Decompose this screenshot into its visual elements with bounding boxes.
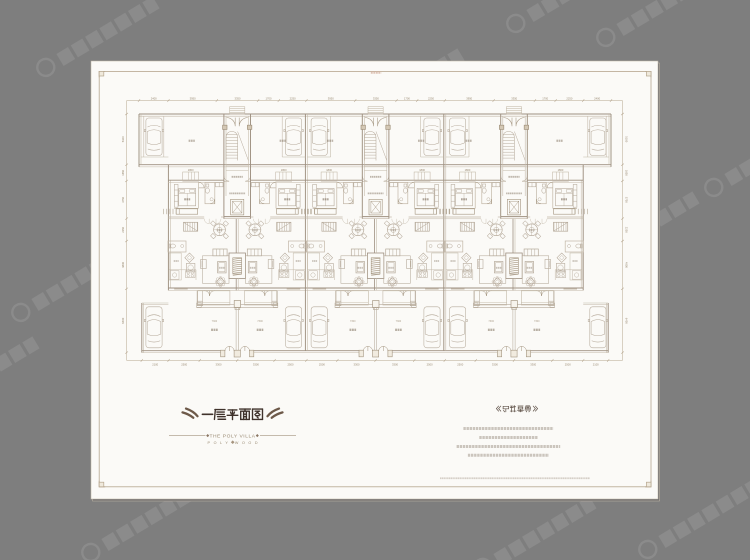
svg-text:1800: 1800: [188, 168, 194, 172]
svg-text:2100: 2100: [152, 362, 158, 366]
svg-text:1700: 1700: [404, 96, 410, 100]
svg-text:1800: 1800: [558, 168, 564, 172]
svg-text:2500: 2500: [288, 362, 294, 366]
svg-text:2250: 2250: [428, 96, 434, 100]
svg-text:2250: 2250: [290, 96, 296, 100]
svg-text:2400: 2400: [594, 96, 600, 100]
svg-text:2500: 2500: [457, 362, 463, 366]
svg-text:6400: 6400: [624, 318, 628, 324]
svg-text:3950: 3950: [328, 96, 334, 100]
svg-text:2500: 2500: [565, 362, 571, 366]
svg-text:1650: 1650: [121, 169, 125, 175]
svg-text:5100: 5100: [624, 136, 628, 142]
svg-text:2500: 2500: [427, 362, 433, 366]
svg-text:2250: 2250: [121, 226, 125, 232]
svg-text:WOOD: WOOD: [235, 441, 261, 445]
svg-text:1650: 1650: [624, 170, 628, 176]
svg-text:1700: 1700: [542, 96, 548, 100]
svg-text:4800: 4800: [624, 262, 628, 268]
svg-text:4800: 4800: [121, 261, 125, 267]
svg-text:3350: 3350: [235, 96, 241, 100]
svg-text:3300: 3300: [392, 362, 398, 366]
svg-text:2500: 2500: [319, 362, 325, 366]
svg-text:3750: 3750: [624, 197, 628, 203]
svg-text:THE POLY VILLA: THE POLY VILLA: [209, 434, 255, 440]
svg-text:7300: 7300: [212, 320, 218, 323]
svg-text:6400: 6400: [121, 317, 125, 323]
svg-text:7300: 7300: [396, 320, 402, 323]
svg-text:3750: 3750: [121, 196, 125, 202]
svg-text:2100: 2100: [593, 362, 599, 366]
svg-text:2400: 2400: [151, 96, 157, 100]
svg-text:3950: 3950: [190, 96, 196, 100]
svg-text:7300: 7300: [350, 320, 356, 323]
svg-text:7300: 7300: [257, 320, 263, 323]
svg-text:3950: 3950: [466, 96, 472, 100]
svg-text:3350: 3350: [511, 96, 517, 100]
svg-text:2250: 2250: [624, 227, 628, 233]
svg-text:7300: 7300: [534, 320, 540, 323]
svg-text:1700: 1700: [266, 96, 272, 100]
svg-text:2250: 2250: [566, 96, 572, 100]
svg-text:2500: 2500: [181, 362, 187, 366]
svg-text:1800: 1800: [281, 168, 287, 172]
svg-text:3300: 3300: [253, 362, 259, 366]
svg-text:3300: 3300: [492, 362, 498, 366]
svg-text:POLY: POLY: [208, 441, 232, 445]
svg-text:1800: 1800: [465, 168, 471, 172]
svg-text:1800: 1800: [326, 168, 332, 172]
svg-text:5100: 5100: [121, 136, 125, 142]
svg-text:3300: 3300: [216, 362, 222, 366]
svg-text:3300: 3300: [530, 362, 536, 366]
svg-text:3350: 3350: [373, 96, 379, 100]
svg-text:1800: 1800: [419, 168, 425, 172]
svg-text:3300: 3300: [354, 362, 360, 366]
svg-text:7300: 7300: [488, 320, 494, 323]
